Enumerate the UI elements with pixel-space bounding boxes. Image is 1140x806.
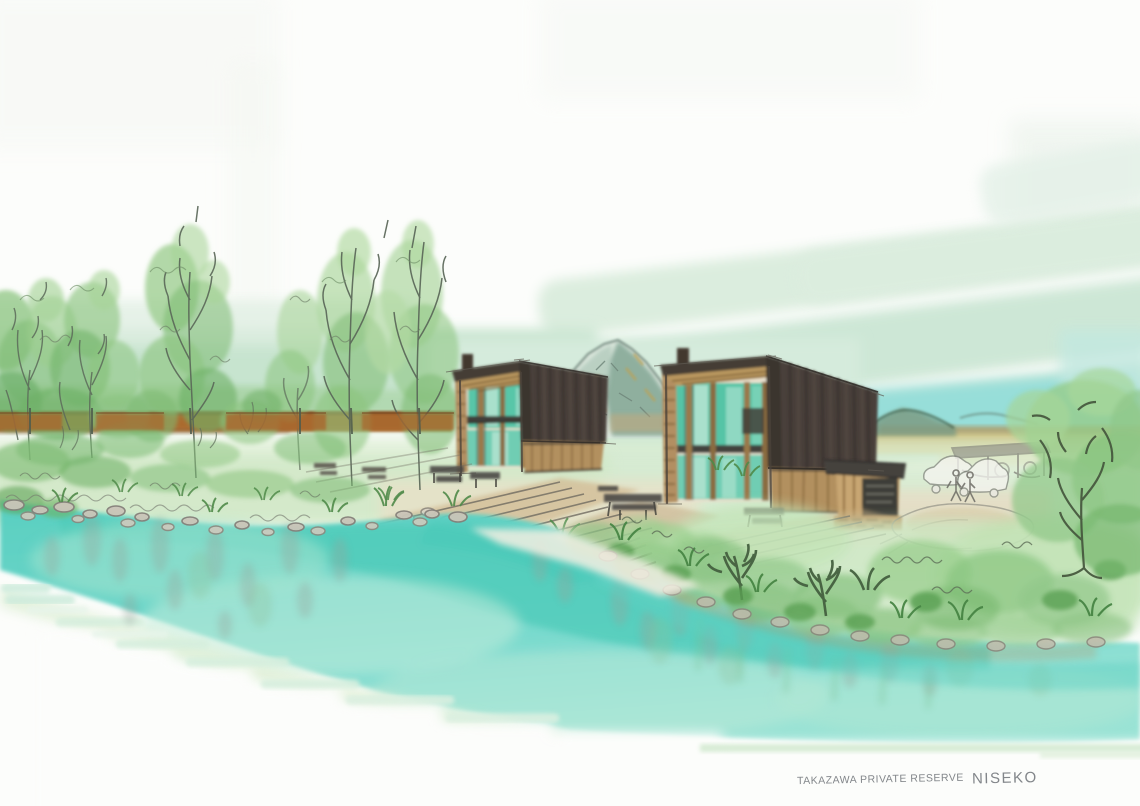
svg-text:NISEKO: NISEKO bbox=[972, 769, 1038, 787]
